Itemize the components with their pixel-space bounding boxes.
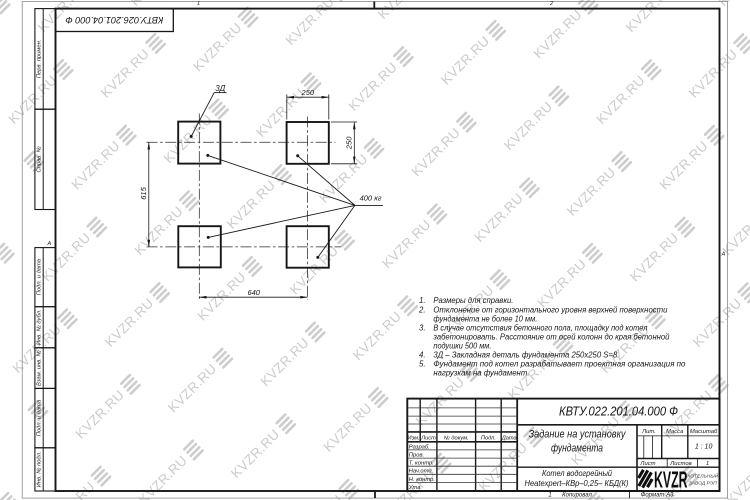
svg-text:КВТУ.022.201.04.000 Ф: КВТУ.022.201.04.000 Ф [559, 404, 678, 419]
svg-text:Справ. №: Справ. № [36, 146, 42, 172]
svg-text:3Д: 3Д [215, 84, 225, 93]
svg-text:Формат А3: Формат А3 [641, 492, 674, 498]
svg-text:615: 615 [139, 186, 148, 199]
svg-text:Взам. инв. №: Взам. инв. № [36, 350, 42, 386]
svg-text:2.: 2. [418, 305, 426, 314]
svg-text:Задание на установку: Задание на установку [529, 429, 627, 441]
svg-text:Отклонение от горизонтального: Отклонение от горизонтального уровня вер… [433, 305, 668, 314]
svg-text:В случае отсутствия бетонного: В случае отсутствия бетонного пола, площ… [433, 323, 648, 332]
svg-text:нагрузкам на фундамент.: нагрузкам на фундамент. [433, 369, 529, 378]
svg-text:1.: 1. [419, 296, 426, 305]
svg-text:А: А [46, 241, 51, 247]
svg-text:ЗАВОД РЭП: ЗАВОД РЭП [689, 480, 718, 486]
svg-text:Лист: Лист [420, 435, 436, 441]
svg-text:Т. контр.: Т. контр. [409, 461, 434, 467]
svg-text:250: 250 [301, 88, 315, 97]
svg-text:2: 2 [549, 1, 553, 7]
svg-text:640: 640 [247, 288, 260, 297]
svg-text:Изм.: Изм. [408, 435, 420, 441]
svg-text:фундамента: фундамента [551, 443, 603, 455]
svg-text:KVZR: KVZR [654, 466, 688, 492]
svg-text:Н. контр.: Н. контр. [409, 477, 435, 483]
svg-text:Масштаб: Масштаб [690, 429, 718, 435]
svg-text:Разраб.: Разраб. [409, 444, 430, 450]
svg-text:Нач.отд.: Нач.отд. [409, 469, 433, 475]
svg-text:1: 1 [706, 461, 709, 467]
svg-text:5.: 5. [419, 360, 426, 369]
svg-text:400 кг: 400 кг [360, 194, 382, 203]
svg-text:Размеры для справки.: Размеры для справки. [433, 296, 513, 305]
svg-text:Heatexpert–КВр–0,25– КБД(К): Heatexpert–КВр–0,25– КБД(К) [525, 478, 629, 488]
svg-text:3.: 3. [419, 323, 426, 332]
svg-text:Подп. и дата: Подп. и дата [36, 399, 42, 436]
svg-text:Лит.: Лит. [641, 429, 656, 435]
svg-text:Инв. № подл.: Инв. № подл. [36, 451, 42, 487]
svg-text:Масса: Масса [666, 429, 684, 435]
svg-text:Дата: Дата [501, 435, 517, 441]
svg-text:фундамента не более 10 мм.: фундамента не более 10 мм. [433, 314, 537, 323]
svg-text:1: 1 [197, 1, 200, 7]
svg-text:3Д – Закладная деталь фундамен: 3Д – Закладная деталь фундамента 250х250… [433, 351, 619, 360]
svg-text:КВТУ.026.201.04.000 Ф: КВТУ.026.201.04.000 Ф [65, 15, 163, 25]
svg-text:забетонировать. Расстояние от: забетонировать. Расстояние от осей колон… [432, 332, 670, 341]
svg-text:1: 1 [548, 492, 551, 498]
svg-text:№ докум.: № докум. [444, 435, 469, 441]
svg-text:Перв. примен.: Перв. примен. [36, 40, 42, 79]
svg-text:Пров.: Пров. [409, 453, 424, 459]
svg-text:250: 250 [345, 136, 354, 150]
svg-text:Подп. и дата: Подп. и дата [36, 258, 42, 295]
svg-text:Фундамент под котел разрабатыв: Фундамент под котел разрабатывает проект… [433, 360, 686, 369]
svg-text:Копировал: Копировал [562, 492, 592, 498]
svg-text:А: А [721, 252, 726, 258]
svg-text:подушки 500 мм.: подушки 500 мм. [433, 342, 491, 351]
svg-text:4.: 4. [419, 351, 426, 360]
svg-text:Утв.: Утв. [408, 485, 422, 491]
svg-text:Котел водогрейный: Котел водогрейный [542, 468, 612, 478]
svg-text:Подп.: Подп. [481, 435, 496, 441]
svg-text:Инв. № дубл.: Инв. № дубл. [36, 309, 42, 345]
svg-text:1 : 10: 1 : 10 [695, 444, 713, 451]
